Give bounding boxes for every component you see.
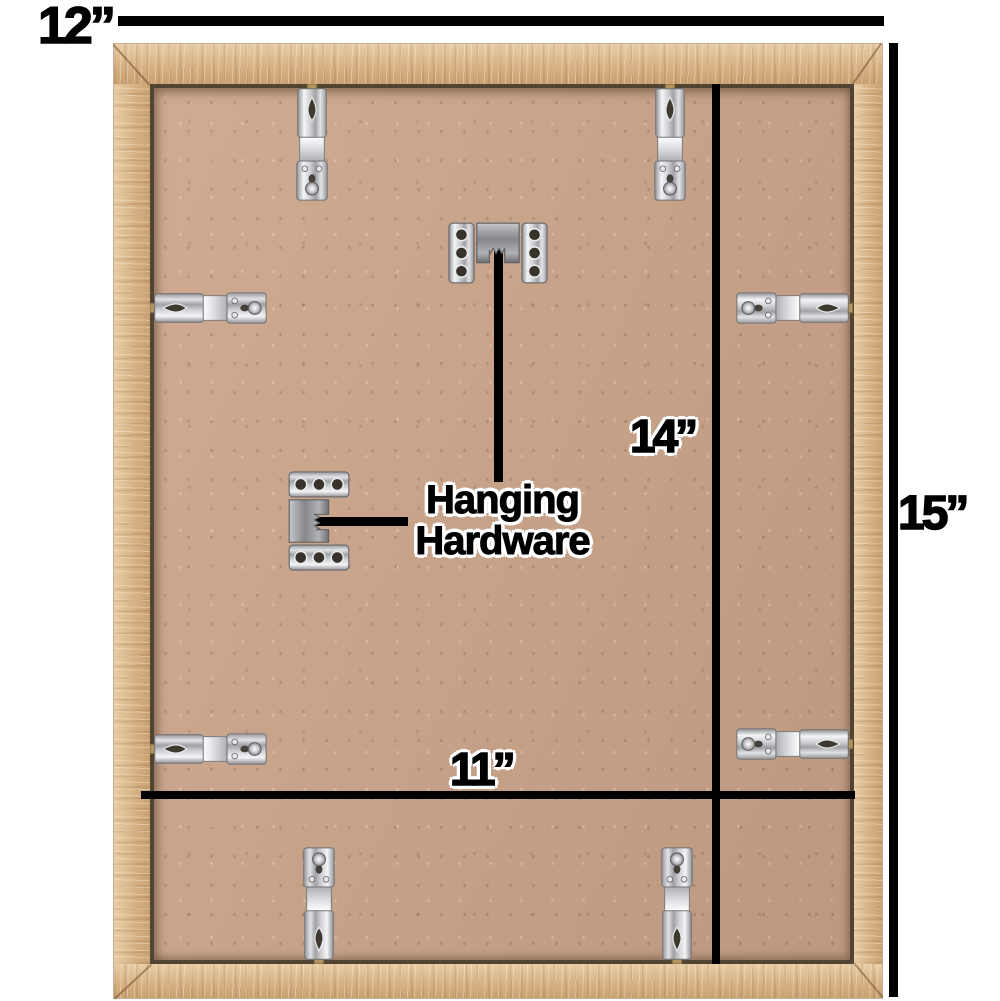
inner-height-dimension-line — [712, 84, 720, 964]
hanging-hardware-label-line2: Hardware — [395, 521, 610, 562]
spring-clip-icon — [150, 289, 268, 327]
product-image: 12” 15” — [0, 0, 1000, 1001]
frame-top-rail — [114, 44, 882, 84]
outer-width-dimension-line — [118, 16, 884, 26]
spring-clip-icon — [150, 730, 268, 768]
spring-clip-icon — [293, 84, 331, 202]
frame-bottom-rail — [114, 964, 882, 998]
sawtooth-hanger-icon — [448, 218, 548, 288]
sawtooth-hanger-icon — [284, 471, 354, 571]
hanging-hardware-label: Hanging Hardware — [395, 480, 610, 562]
frame-left-rail — [114, 84, 150, 964]
outer-height-label: 15” — [898, 490, 966, 538]
inner-width-label: 11” — [450, 746, 513, 792]
spring-clip-icon — [651, 84, 689, 202]
inner-height-label: 14” — [630, 413, 695, 459]
spring-clip-icon — [735, 725, 853, 763]
hanging-hardware-label-line1: Hanging — [395, 480, 610, 521]
spring-clip-icon — [658, 846, 696, 964]
outer-height-dimension-line — [889, 43, 898, 997]
spring-clip-icon — [735, 289, 853, 327]
frame-right-rail — [854, 84, 882, 964]
spring-clip-icon — [300, 846, 338, 964]
outer-width-label: 12” — [38, 0, 113, 52]
